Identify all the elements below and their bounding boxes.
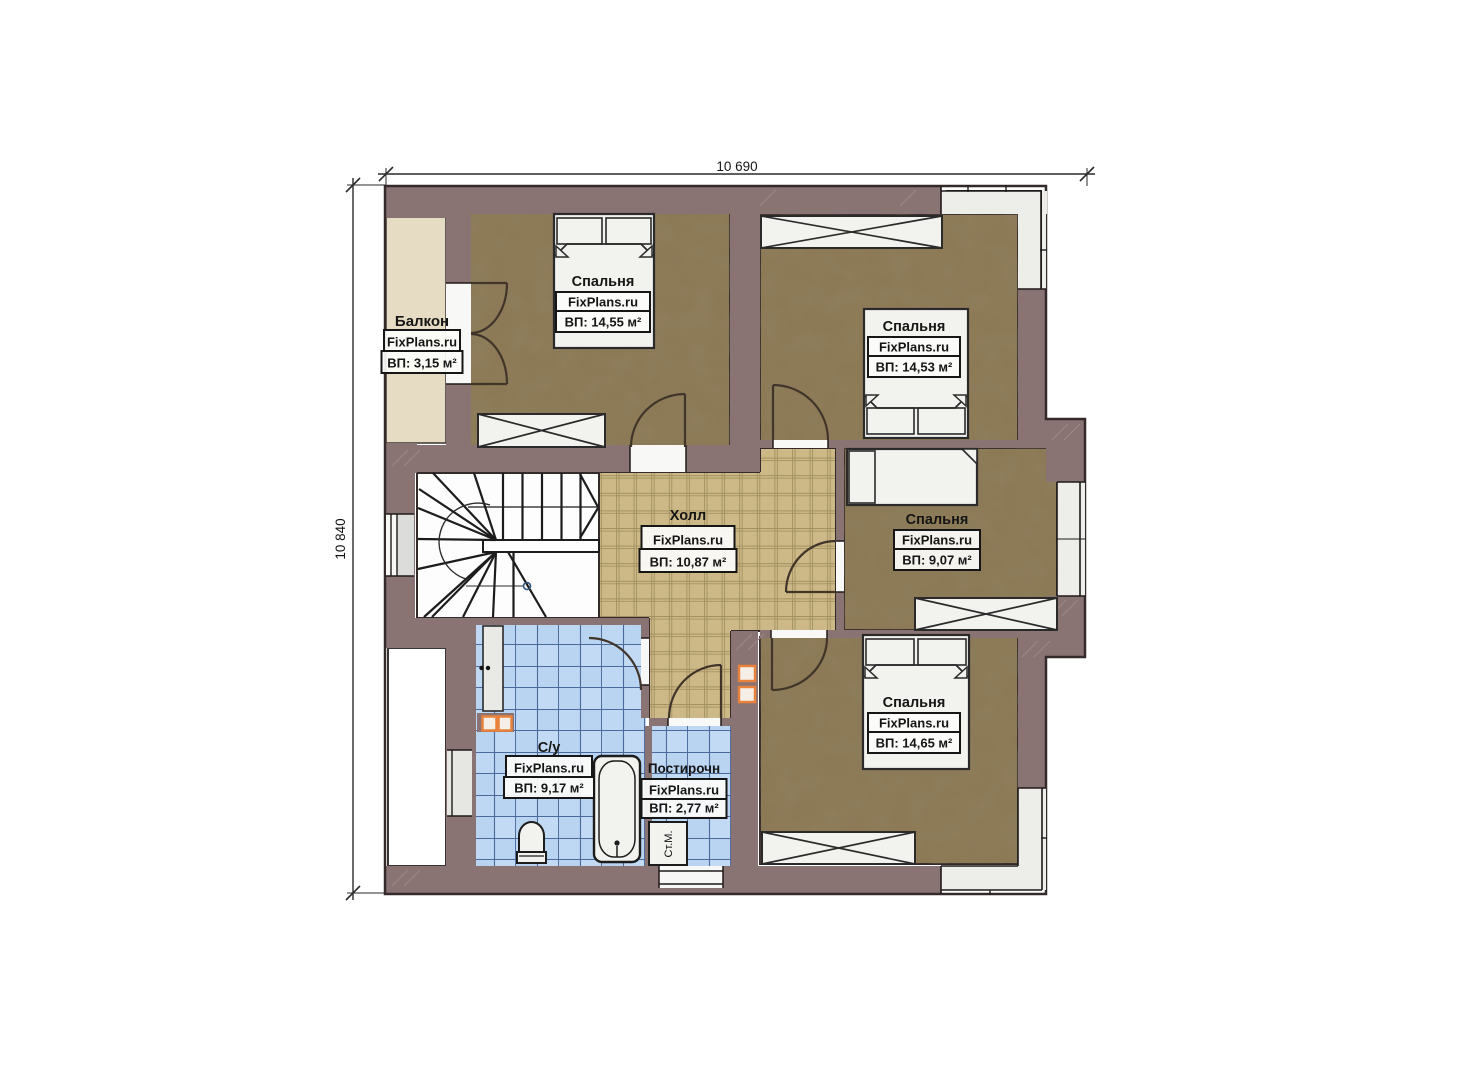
svg-text:ВП: 14,53 м²: ВП: 14,53 м² (876, 360, 953, 375)
svg-text:ВП: 3,15 м²: ВП: 3,15 м² (387, 356, 457, 371)
svg-text:Спальня: Спальня (572, 274, 635, 290)
svg-text:10 690: 10 690 (716, 159, 757, 174)
svg-text:ВП: 10,87 м²: ВП: 10,87 м² (650, 555, 727, 570)
svg-text:ВП: 2,77 м²: ВП: 2,77 м² (649, 801, 719, 816)
svg-text:10 840: 10 840 (333, 518, 348, 559)
svg-text:FixPlans.ru: FixPlans.ru (568, 295, 638, 310)
svg-text:Постирочн: Постирочн (648, 761, 720, 776)
svg-text:Балкон: Балкон (395, 313, 449, 330)
svg-text:FixPlans.ru: FixPlans.ru (653, 533, 723, 548)
svg-text:Спальня: Спальня (906, 512, 969, 528)
svg-text:FixPlans.ru: FixPlans.ru (649, 783, 719, 798)
svg-text:ВП: 9,07 м²: ВП: 9,07 м² (902, 553, 972, 568)
svg-text:ВП: 14,65 м²: ВП: 14,65 м² (876, 736, 953, 751)
svg-text:Спальня: Спальня (883, 695, 946, 711)
svg-text:С/у: С/у (538, 740, 561, 756)
svg-text:FixPlans.ru: FixPlans.ru (514, 761, 584, 776)
svg-text:Холл: Холл (670, 508, 706, 524)
svg-text:ВП: 14,55 м²: ВП: 14,55 м² (565, 315, 642, 330)
svg-text:FixPlans.ru: FixPlans.ru (387, 335, 457, 350)
svg-text:Спальня: Спальня (883, 319, 946, 335)
svg-text:FixPlans.ru: FixPlans.ru (879, 340, 949, 355)
svg-text:ВП: 9,17 м²: ВП: 9,17 м² (514, 781, 584, 796)
svg-text:FixPlans.ru: FixPlans.ru (902, 533, 972, 548)
svg-text:FixPlans.ru: FixPlans.ru (879, 716, 949, 731)
svg-text:Ст.М.: Ст.М. (663, 830, 675, 857)
